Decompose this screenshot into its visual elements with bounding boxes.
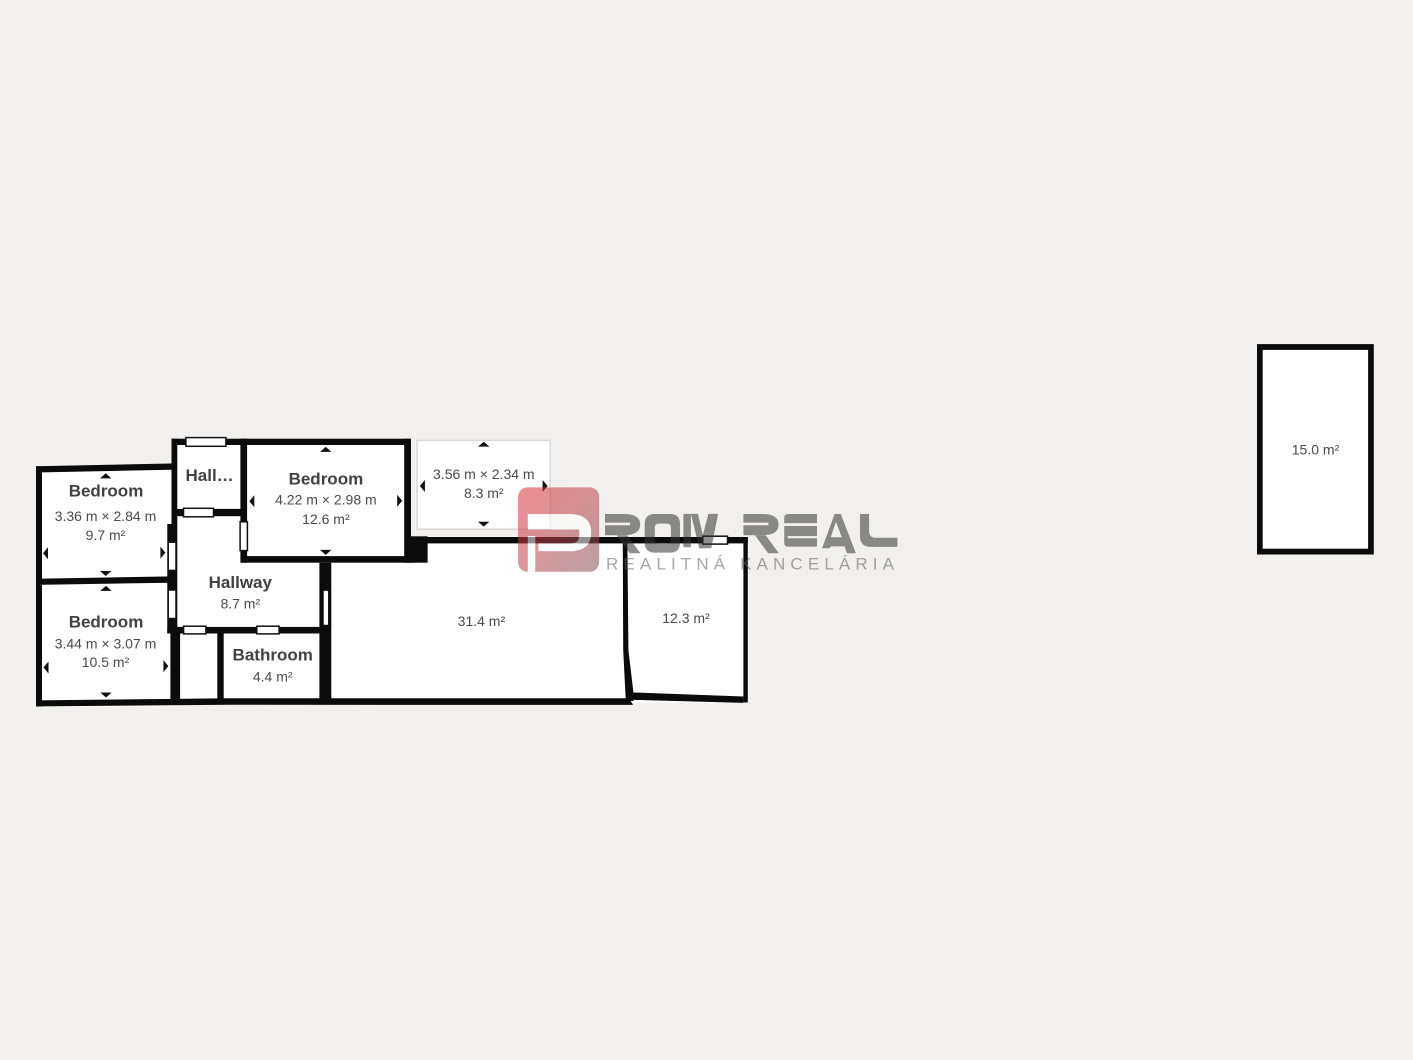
svg-text:9.7 m²: 9.7 m² (86, 527, 126, 543)
svg-text:31.4 m²: 31.4 m² (458, 613, 506, 629)
svg-text:3.44 m × 3.07 m: 3.44 m × 3.07 m (55, 635, 157, 651)
svg-text:3.36 m × 2.84 m: 3.36 m × 2.84 m (55, 508, 157, 524)
svg-text:15.0 m²: 15.0 m² (1292, 442, 1340, 458)
svg-text:8.7 m²: 8.7 m² (220, 595, 260, 611)
svg-text:Hallway: Hallway (209, 573, 273, 592)
svg-text:Bedroom: Bedroom (69, 482, 144, 501)
svg-text:4.4 m²: 4.4 m² (253, 668, 293, 684)
svg-text:4.22 m × 2.98 m: 4.22 m × 2.98 m (275, 492, 377, 508)
svg-text:10.5 m²: 10.5 m² (82, 654, 130, 670)
svg-text:12.3 m²: 12.3 m² (662, 610, 710, 626)
svg-text:Hall…: Hall… (186, 466, 234, 485)
svg-text:12.6 m²: 12.6 m² (302, 511, 350, 527)
svg-text:Bedroom: Bedroom (69, 612, 144, 631)
svg-text:Bedroom: Bedroom (289, 469, 364, 488)
svg-text:Bathroom: Bathroom (233, 646, 313, 665)
svg-text:3.56 m × 2.34 m: 3.56 m × 2.34 m (433, 466, 535, 482)
svg-text:8.3 m²: 8.3 m² (464, 485, 504, 501)
